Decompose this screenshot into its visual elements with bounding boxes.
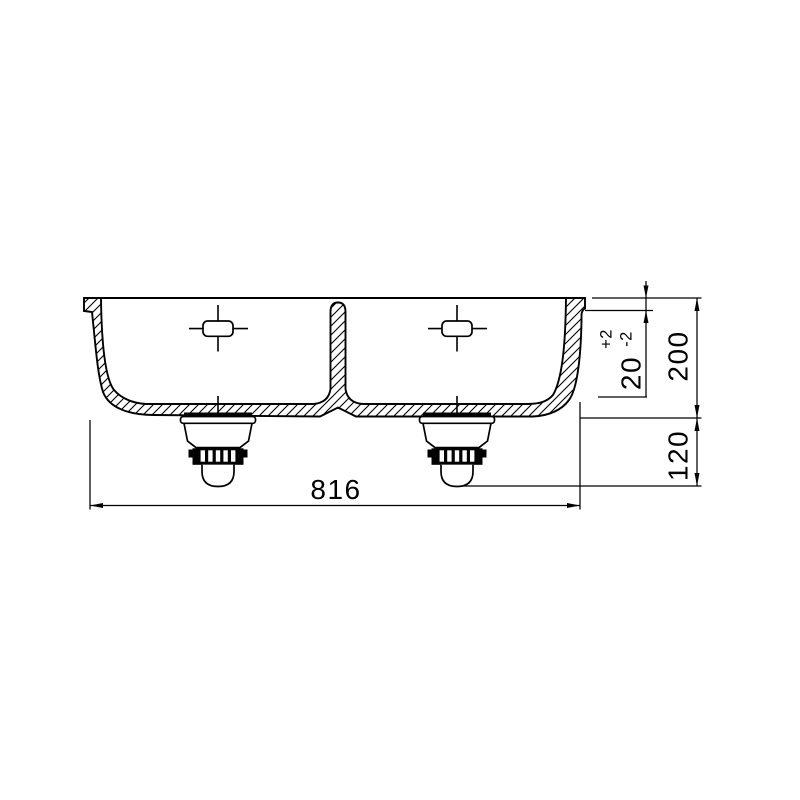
drain-left-flange [181, 417, 256, 424]
dim-816-arrow-left [90, 503, 103, 508]
drain-left-locknut-slit [223, 450, 227, 461]
drain-right-body [423, 423, 491, 447]
dim-20-tol-minus: -2 [618, 331, 636, 347]
drawing-canvas: 816 200 120 20 +2 -2 [0, 0, 800, 800]
dim-120-arrow-bottom [695, 473, 700, 486]
dim-20-value: 20 [616, 356, 647, 390]
sink-technical-drawing: 816 200 120 20 +2 -2 [0, 0, 800, 800]
drain-left-body [184, 423, 252, 447]
dim-816-value: 816 [310, 474, 361, 505]
drain-left-locknut-slit [231, 450, 235, 461]
dim-200-arrow-bottom [695, 405, 700, 418]
dim-816: 816 [90, 402, 580, 510]
drain-right-locknut-slit [470, 450, 474, 461]
drain-left-trap-dome [202, 465, 234, 487]
sink-wall-hatched-band [84, 298, 585, 417]
dim-816-arrow-right [567, 503, 580, 508]
drain-left-locknut-slit [201, 450, 205, 461]
dim-200-value: 200 [663, 330, 694, 381]
tap-hole-symbol-left [189, 305, 248, 352]
drain-left-locknut-slit [216, 450, 220, 461]
dim-20-arrow-top [644, 286, 649, 299]
drain-right-flange [420, 417, 495, 424]
dim-200-arrow-top [695, 298, 700, 311]
drain-right-locknut-slit [447, 450, 451, 461]
tap-hole-right-rect [442, 321, 472, 336]
drain-right-locknut-slit [455, 450, 459, 461]
drain-right-trap-dome [441, 465, 473, 487]
dim-120-value: 120 [663, 430, 694, 481]
sink-body-section [84, 298, 585, 417]
drain-right-locknut-slit [462, 450, 466, 461]
tap-hole-left-rect [203, 321, 233, 336]
dim-20-arrow-bottom [644, 311, 649, 324]
drain-right-locknut-slit [440, 450, 444, 461]
dim-120-arrow-top [695, 418, 700, 431]
drain-left-locknut-slit [208, 450, 212, 461]
dim-20-tol-plus: +2 [598, 329, 616, 349]
tap-hole-symbol-right [428, 305, 487, 352]
